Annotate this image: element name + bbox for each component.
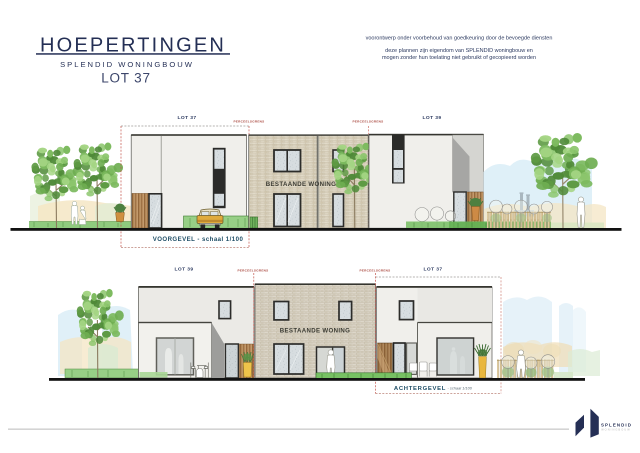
svg-text:- schaal 1/100: - schaal 1/100	[448, 386, 473, 391]
svg-text:PERCEELSGRENS: PERCEELSGRENS	[353, 120, 384, 124]
svg-text:VOORGEVEL - schaal 1/100: VOORGEVEL - schaal 1/100	[153, 236, 244, 243]
svg-text:LOT 37: LOT 37	[424, 267, 443, 273]
svg-text:voorontwerp onder voorbehoud v: voorontwerp onder voorbehoud van goedkeu…	[366, 36, 553, 42]
svg-text:LOT 37: LOT 37	[101, 71, 151, 86]
svg-text:LOT 39: LOT 39	[175, 267, 194, 273]
svg-text:SPLENDID WONINGBOUW: SPLENDID WONINGBOUW	[60, 60, 194, 69]
svg-text:LOT 37: LOT 37	[178, 115, 197, 121]
svg-text:deze plannen zijn eigendom van: deze plannen zijn eigendom van SPLENDID …	[385, 48, 533, 54]
svg-text:WONINGBOUW: WONINGBOUW	[601, 428, 631, 432]
svg-text:LOT 39: LOT 39	[423, 115, 442, 121]
svg-text:PERCEELSGRENS: PERCEELSGRENS	[238, 269, 269, 273]
svg-text:PERCEELSGRENS: PERCEELSGRENS	[360, 269, 391, 273]
svg-text:BESTAANDE WONING: BESTAANDE WONING	[266, 181, 337, 188]
svg-text:PERCEELSGRENS: PERCEELSGRENS	[234, 120, 265, 124]
svg-text:mogen zonder hun toelating nie: mogen zonder hun toelating niet gebruikt…	[382, 55, 536, 61]
svg-text:ACHTERGEVEL: ACHTERGEVEL	[394, 386, 446, 392]
svg-text:BESTAANDE WONING: BESTAANDE WONING	[280, 327, 351, 334]
svg-text:SPLENDID: SPLENDID	[601, 423, 632, 428]
